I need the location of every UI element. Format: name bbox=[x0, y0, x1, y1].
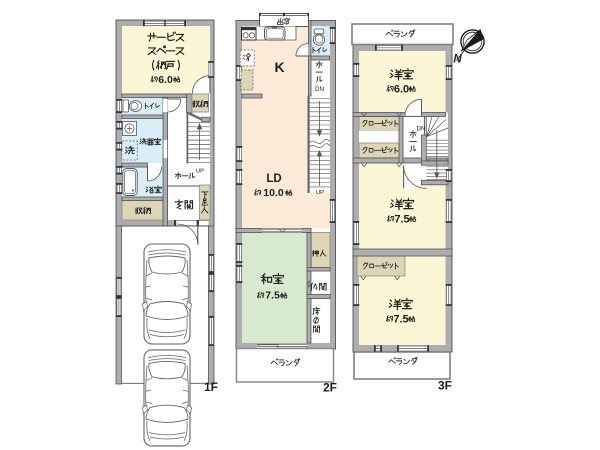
svg-text:K: K bbox=[274, 59, 284, 75]
svg-text:6.0: 6.0 bbox=[394, 83, 409, 95]
svg-text:6.0: 6.0 bbox=[158, 74, 173, 86]
svg-text:N: N bbox=[453, 54, 462, 66]
svg-text:2F: 2F bbox=[323, 381, 337, 395]
svg-text:DN: DN bbox=[416, 126, 426, 133]
svg-text:7.5: 7.5 bbox=[393, 313, 408, 325]
svg-text:DN: DN bbox=[315, 86, 325, 93]
svg-text:UP: UP bbox=[196, 168, 204, 174]
svg-text:7.5: 7.5 bbox=[394, 213, 409, 225]
svg-text:7.5: 7.5 bbox=[265, 290, 280, 302]
svg-text:1F: 1F bbox=[204, 380, 218, 394]
svg-text:10.0: 10.0 bbox=[263, 187, 284, 199]
svg-text:UP: UP bbox=[316, 190, 324, 196]
svg-text:3F: 3F bbox=[438, 379, 452, 393]
svg-text:LD: LD bbox=[266, 173, 281, 185]
